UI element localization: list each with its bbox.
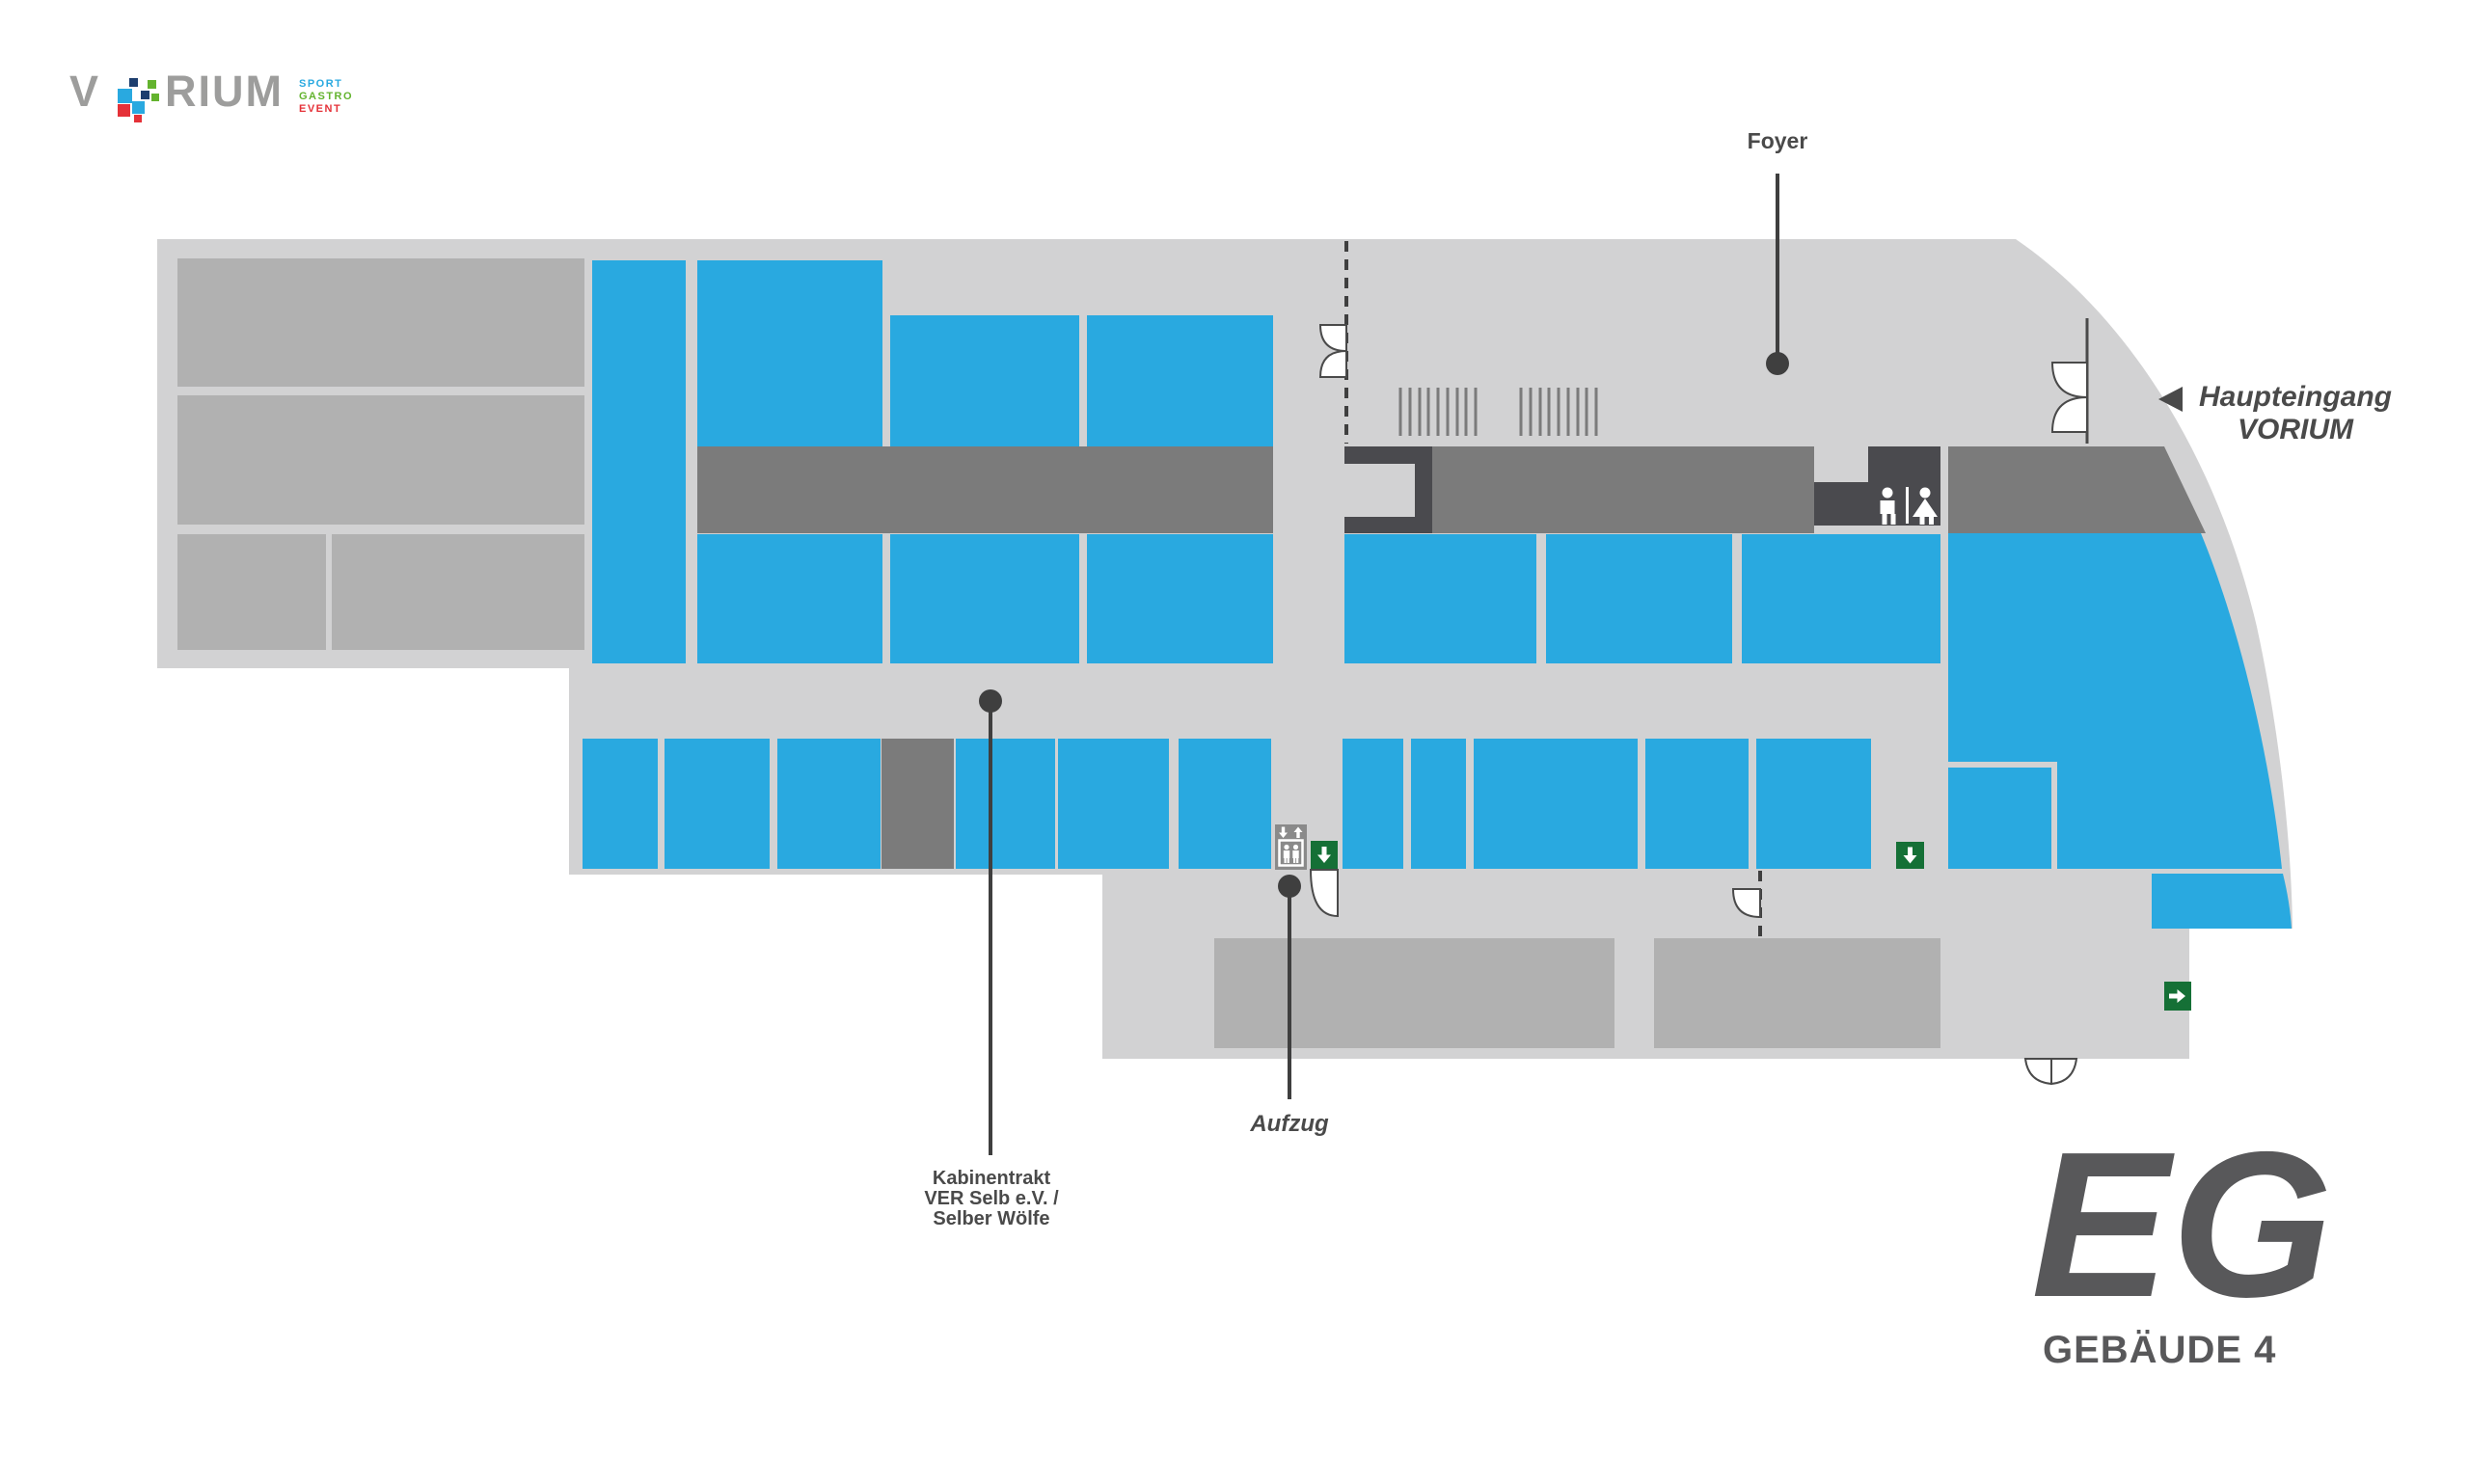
exit-down-arrow-sign bbox=[1311, 841, 1338, 869]
room bbox=[1546, 534, 1732, 663]
room bbox=[1756, 739, 1871, 869]
room bbox=[1344, 534, 1536, 663]
building-title: GEBÄUDE 4 bbox=[2043, 1329, 2276, 1371]
room bbox=[890, 315, 1079, 446]
room bbox=[882, 739, 954, 869]
callout-dot-aufzug bbox=[1278, 875, 1301, 898]
wc-divider bbox=[1906, 487, 1909, 524]
room bbox=[332, 534, 584, 650]
floor-level-title: EG bbox=[2031, 1120, 2335, 1328]
room bbox=[1087, 315, 1273, 446]
room bbox=[956, 739, 1055, 869]
corridor-band bbox=[697, 446, 2206, 533]
room bbox=[697, 534, 882, 663]
tagline-event: EVENT bbox=[299, 103, 353, 116]
room bbox=[1343, 739, 1403, 869]
callout-dot-foyer bbox=[1766, 352, 1789, 375]
kabinentrakt-label: Kabinentrakt VER Selb e.V. / Selber Wölf… bbox=[866, 1169, 1117, 1229]
exit-down-arrow-sign bbox=[1896, 842, 1924, 869]
room bbox=[1742, 534, 1940, 663]
room bbox=[665, 739, 770, 869]
room bbox=[177, 534, 326, 650]
room bbox=[1087, 534, 1273, 663]
room bbox=[583, 739, 658, 869]
main-entrance-label: Haupteingang VORIUM bbox=[2189, 381, 2401, 446]
room bbox=[1645, 739, 1749, 869]
room-small-curved bbox=[2152, 874, 2292, 929]
room bbox=[177, 258, 584, 387]
room bbox=[1654, 938, 1940, 1048]
room bbox=[1058, 739, 1169, 869]
corridor-curved-end bbox=[1948, 446, 2206, 533]
logo-vorium-suffix: RIUM bbox=[165, 69, 284, 113]
room bbox=[697, 260, 882, 446]
foyer-label: Foyer bbox=[1681, 128, 1874, 154]
room bbox=[1411, 739, 1466, 869]
floorplan-page: V RIUM SPORT GASTRO EVENT Foyer Kabinent… bbox=[0, 0, 2469, 1484]
room bbox=[1474, 739, 1638, 869]
room bbox=[592, 260, 686, 663]
room bbox=[777, 739, 881, 869]
room bbox=[177, 395, 584, 525]
elevator-icon bbox=[1275, 824, 1307, 870]
callout-dot-kabinentrakt bbox=[979, 689, 1002, 713]
logo-vorium-prefix: V bbox=[69, 69, 100, 113]
tagline-gastro: GASTRO bbox=[299, 91, 353, 103]
logo-tagline: SPORT GASTRO EVENT bbox=[299, 78, 353, 116]
room bbox=[890, 534, 1079, 663]
room bbox=[1179, 739, 1271, 869]
room bbox=[1214, 938, 1614, 1048]
exit-right-arrow-sign bbox=[2164, 982, 2191, 1011]
tagline-sport: SPORT bbox=[299, 78, 353, 91]
aufzug-label: Aufzug bbox=[1193, 1111, 1386, 1138]
